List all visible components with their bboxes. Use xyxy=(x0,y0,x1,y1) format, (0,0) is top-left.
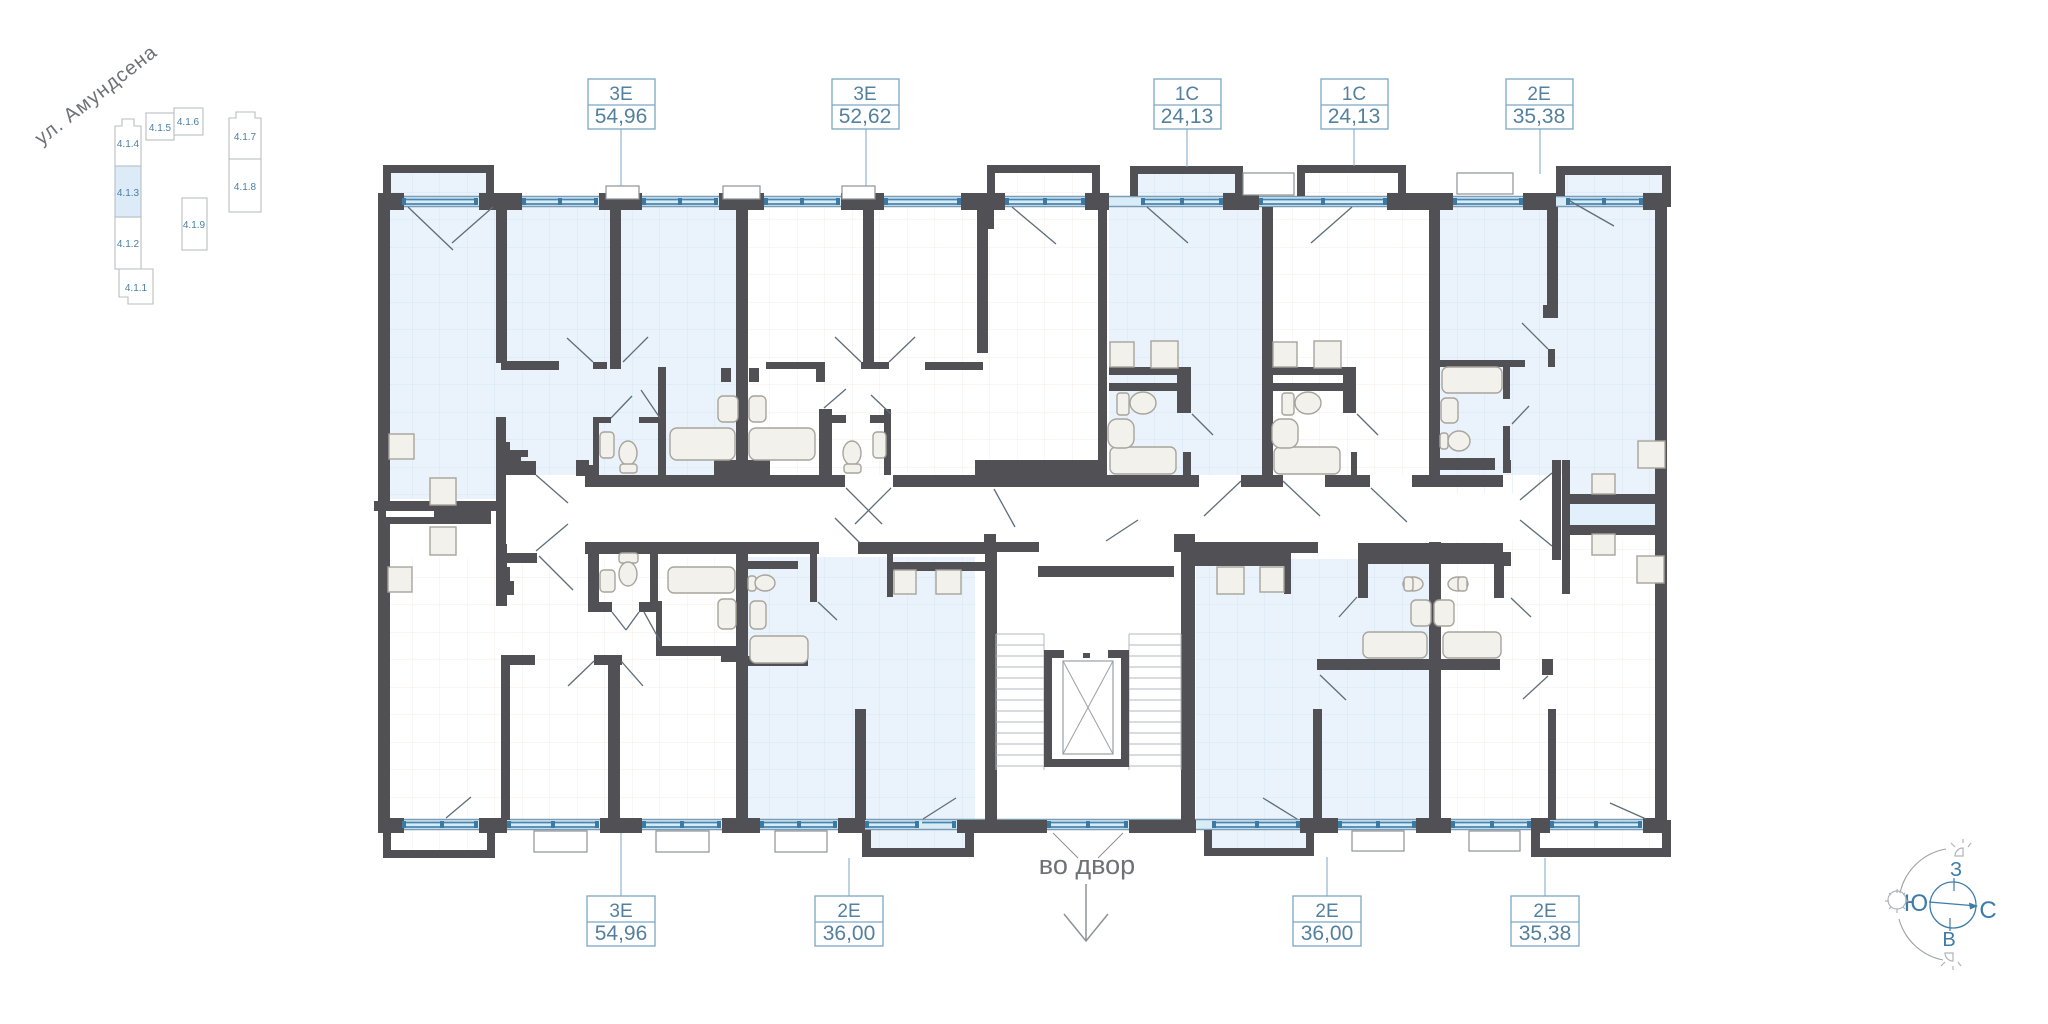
svg-text:2Е: 2Е xyxy=(1315,901,1338,922)
svg-text:52,62: 52,62 xyxy=(839,105,892,128)
svg-text:24,13: 24,13 xyxy=(1328,105,1381,128)
svg-text:2Е: 2Е xyxy=(1527,84,1550,105)
svg-text:4.1.2: 4.1.2 xyxy=(117,239,140,250)
svg-text:во двор: во двор xyxy=(1039,850,1135,880)
svg-text:35,38: 35,38 xyxy=(1519,922,1572,945)
svg-text:4.1.7: 4.1.7 xyxy=(234,132,257,143)
svg-text:В: В xyxy=(1942,929,1955,951)
svg-text:4.1.8: 4.1.8 xyxy=(234,182,257,193)
svg-text:4.1.5: 4.1.5 xyxy=(149,123,172,134)
svg-text:С: С xyxy=(1979,897,1996,924)
svg-text:1С: 1С xyxy=(1342,84,1366,105)
svg-text:3Е: 3Е xyxy=(609,84,632,105)
svg-text:4.1.3: 4.1.3 xyxy=(117,188,140,199)
svg-text:3Е: 3Е xyxy=(853,84,876,105)
svg-text:4.1.9: 4.1.9 xyxy=(183,220,206,231)
svg-text:3Е: 3Е xyxy=(609,901,632,922)
svg-text:2Е: 2Е xyxy=(1533,901,1556,922)
svg-text:4.1.6: 4.1.6 xyxy=(177,117,200,128)
svg-text:36,00: 36,00 xyxy=(1301,922,1354,945)
svg-text:4.1.4: 4.1.4 xyxy=(117,139,140,150)
svg-text:24,13: 24,13 xyxy=(1161,105,1214,128)
svg-text:4.1.1: 4.1.1 xyxy=(125,283,148,294)
svg-text:Ю: Ю xyxy=(1904,890,1928,917)
svg-text:36,00: 36,00 xyxy=(823,922,876,945)
svg-text:2Е: 2Е xyxy=(837,901,860,922)
svg-text:1С: 1С xyxy=(1175,84,1199,105)
svg-text:54,96: 54,96 xyxy=(595,105,648,128)
svg-text:З: З xyxy=(1950,859,1962,881)
svg-text:54,96: 54,96 xyxy=(595,922,648,945)
svg-text:35,38: 35,38 xyxy=(1513,105,1566,128)
